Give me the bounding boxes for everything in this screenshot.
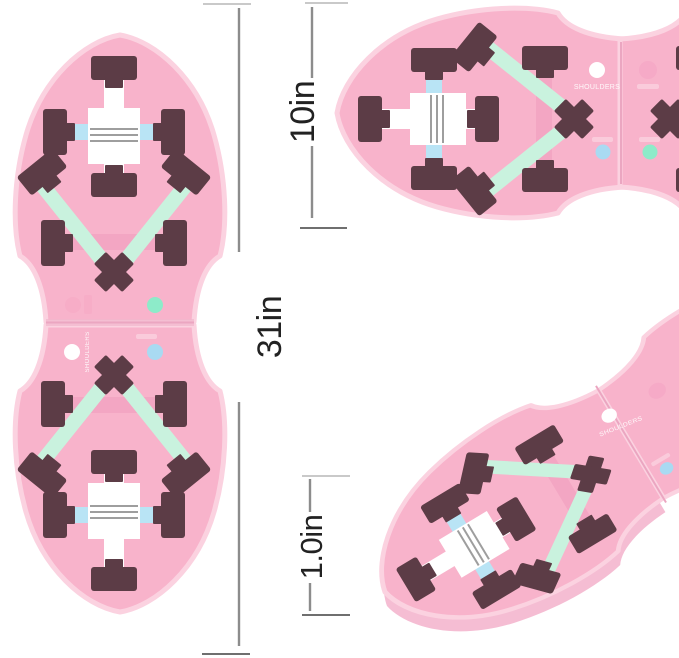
white-dot: [64, 344, 80, 360]
half-view-board: SHOULDERS: [337, 8, 679, 218]
pink-mark: [84, 295, 92, 314]
thickness-label: 1.0in: [294, 515, 329, 580]
height-label: 31in: [251, 296, 289, 358]
side-view-board: SHOULDERS: [339, 220, 679, 658]
blue-dot: [596, 145, 611, 160]
product-dimension-image: SHOULDERS 31in SHOULDERS 10in: [0, 0, 679, 658]
pink-dot: [65, 297, 81, 313]
faint-label: [592, 137, 613, 142]
blue-dot: [147, 344, 163, 360]
faint-label: [639, 137, 660, 142]
front-view-board: SHOULDERS: [15, 35, 225, 612]
pink-dot: [639, 61, 657, 79]
height-dimension: 31in: [202, 4, 289, 654]
faint-label: [136, 334, 157, 339]
shoulders-label: SHOULDERS: [85, 332, 91, 373]
shoulders-label: SHOULDERS: [574, 84, 620, 91]
white-dot: [589, 62, 605, 78]
faint-label: [637, 84, 659, 89]
width-label: 10in: [284, 81, 322, 143]
mint-dot: [643, 145, 658, 160]
thickness-dimension: 1.0in: [294, 476, 350, 615]
mint-dot: [147, 297, 163, 313]
